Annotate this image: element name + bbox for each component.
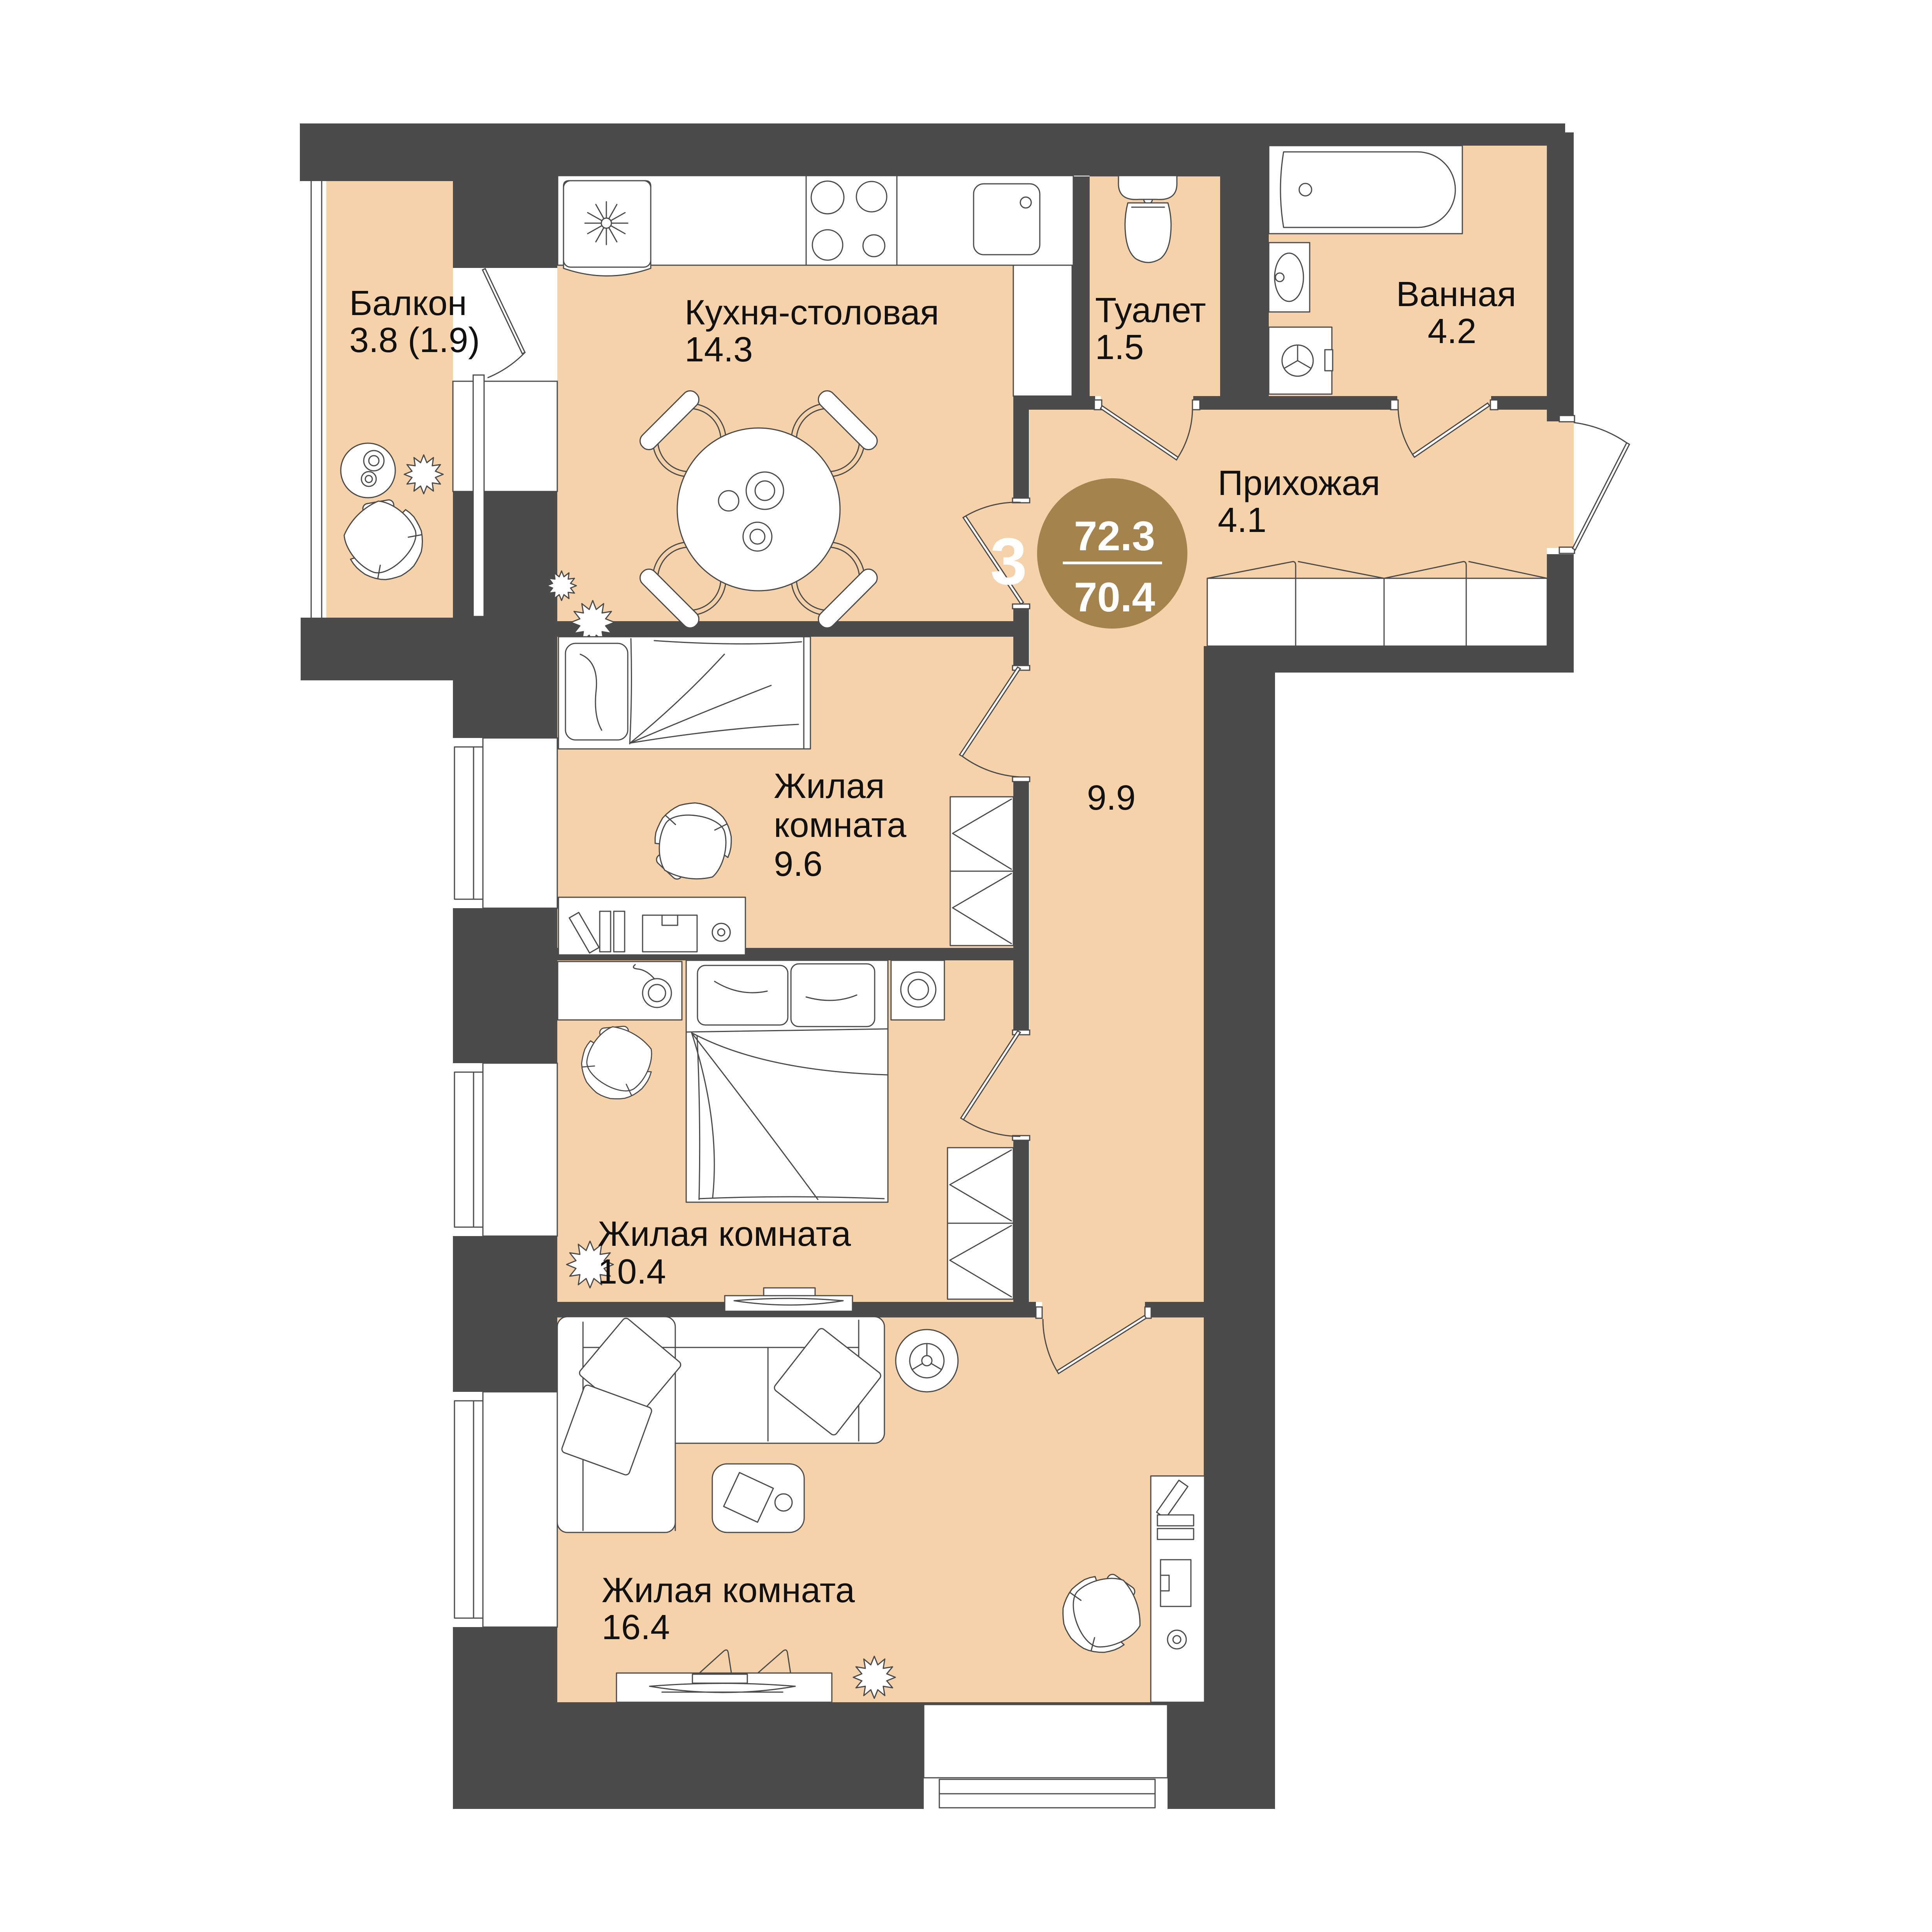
svg-text:Туалет: Туалет bbox=[1095, 291, 1206, 330]
svg-text:Жилая: Жилая bbox=[774, 767, 885, 806]
svg-text:9.9: 9.9 bbox=[1087, 778, 1136, 817]
svg-text:1.5: 1.5 bbox=[1095, 328, 1144, 367]
svg-text:Ванная: Ванная bbox=[1396, 275, 1516, 314]
svg-text:72.3: 72.3 bbox=[1074, 512, 1155, 559]
svg-text:16.4: 16.4 bbox=[602, 1608, 670, 1647]
svg-text:3: 3 bbox=[990, 525, 1027, 599]
svg-text:Жилая комната: Жилая комната bbox=[598, 1215, 851, 1254]
svg-text:9.6: 9.6 bbox=[774, 845, 822, 884]
svg-text:Кухня-столовая: Кухня-столовая bbox=[685, 293, 939, 332]
svg-text:70.4: 70.4 bbox=[1074, 574, 1155, 620]
svg-text:4.1: 4.1 bbox=[1218, 501, 1266, 540]
svg-text:Балкон: Балкон bbox=[349, 284, 467, 323]
svg-text:3.8 (1.9): 3.8 (1.9) bbox=[349, 321, 480, 360]
svg-text:комната: комната bbox=[774, 806, 907, 845]
svg-text:4.2: 4.2 bbox=[1428, 312, 1476, 351]
svg-text:14.3: 14.3 bbox=[685, 330, 753, 369]
svg-text:Прихожая: Прихожая bbox=[1218, 464, 1380, 503]
svg-text:Жилая комната: Жилая комната bbox=[602, 1571, 855, 1610]
svg-text:10.4: 10.4 bbox=[598, 1252, 666, 1291]
